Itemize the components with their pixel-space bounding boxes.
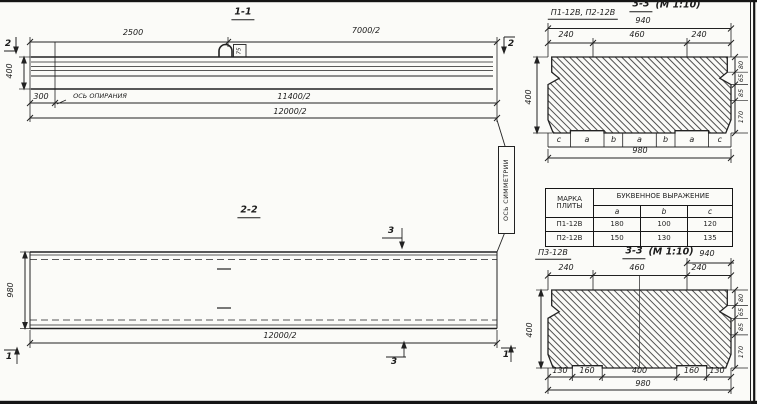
dim-right-85: 85: [738, 88, 745, 96]
dim-130-left: 130: [552, 367, 567, 375]
table-col-c: c: [687, 205, 732, 217]
dim-130-right: 130: [709, 367, 724, 375]
dim-right-170: 170: [738, 111, 745, 123]
section-3-3-bottom-title: 3-3: [622, 245, 645, 259]
dim-160-right: 160: [684, 367, 699, 375]
dim-2500: 2500: [123, 29, 143, 37]
dim-400-left: 400: [526, 322, 534, 337]
dim-240-left: 240: [558, 264, 573, 272]
table-cell: 135: [687, 231, 732, 246]
table-cell: 130: [640, 231, 687, 246]
section-2-2-linework: [4, 228, 516, 364]
table-col-a: a: [593, 205, 640, 217]
cut-marker-2-right: 2: [508, 39, 514, 49]
dim-right-170: 170: [738, 345, 745, 357]
dim-940-top: 940: [635, 17, 650, 25]
table-header-expression: БУКВЕННОЕ ВЫРАЖЕНИЕ: [593, 189, 732, 205]
dim-980-bottom-section: 980: [635, 380, 650, 388]
plate-label-p3: П3-12В: [535, 249, 571, 260]
dim-240-right: 240: [691, 264, 706, 272]
plate-cross-section-hatched: [548, 290, 731, 368]
dim-right-65: 65: [738, 74, 745, 82]
table-row-mark: П2-12В: [546, 231, 593, 246]
drawing-sheet: 1-1 2500 7000/2 2 2 400 75 300 ОСЬ ОПИРА…: [0, 0, 757, 404]
dim-right-80: 80: [738, 294, 745, 302]
dim-height-400: 400: [6, 63, 14, 78]
table-cell: 150: [593, 231, 640, 246]
letter-a-2: a: [637, 136, 642, 144]
dim-7000-2: 7000/2: [352, 27, 380, 35]
plate-parameters-table: МАРКА ПЛИТЫ БУКВЕННОЕ ВЫРАЖЕНИЕ a b c П1…: [545, 188, 733, 247]
dim-160-left: 160: [579, 367, 594, 375]
table-col-b: b: [640, 205, 687, 217]
hook-label: 75: [237, 47, 243, 54]
dim-width-980: 980: [7, 282, 15, 297]
table-cell: 180: [593, 217, 640, 231]
dim-right-65: 65: [738, 308, 745, 316]
section-3-3-bottom-scale: (М 1:10): [648, 247, 693, 258]
dim-12000-2-bottom: 12000/2: [263, 332, 296, 340]
dim-300: 300: [33, 93, 48, 101]
section-2-2-title: 2-2: [237, 204, 260, 218]
dim-940-bottom: 940: [699, 250, 714, 258]
section-3-3-top-title: 3-3: [629, 0, 652, 12]
plate-cross-section-hatched: [548, 57, 731, 133]
table-cell: 100: [640, 217, 687, 231]
dim-460: 460: [629, 31, 644, 39]
dim-right-80: 80: [738, 60, 745, 68]
letter-c-2: c: [718, 136, 722, 144]
dim-11400-2: 11400/2: [277, 93, 310, 101]
dim-400-bottom: 400: [632, 367, 647, 375]
table-cell: 120: [687, 217, 732, 231]
dim-980-top-section: 980: [632, 147, 647, 155]
section-1-1-title: 1-1: [231, 6, 254, 20]
dim-400-left: 400: [525, 89, 533, 104]
letter-a-1: a: [585, 136, 590, 144]
section-3-3-top-scale: (М 1:10): [655, 0, 700, 11]
cut-marker-3-bottom: 3: [391, 357, 397, 367]
letter-a-3: a: [689, 136, 694, 144]
letter-c-1: c: [557, 136, 561, 144]
cut-marker-1-right: 1: [503, 350, 509, 360]
dim-460: 460: [629, 264, 644, 272]
support-axis-label: ОСЬ ОПИРАНИЯ: [73, 93, 127, 100]
cut-marker-3-top: 3: [388, 226, 394, 236]
lifting-hook: [219, 45, 232, 57]
dim-240-left: 240: [558, 31, 573, 39]
symmetry-axis-label: ОСЬ СИММЕТРИИ: [498, 146, 515, 234]
plates-label-p1-p2: П1-12В, П2-12В: [548, 9, 618, 20]
cut-marker-2-left: 2: [5, 39, 11, 49]
table-row-mark: П1-12В: [546, 217, 593, 231]
dim-240-right: 240: [691, 31, 706, 39]
cut-marker-1-left: 1: [6, 352, 12, 362]
letter-b-2: b: [663, 136, 668, 144]
section-1-1-linework: [4, 37, 515, 122]
dim-right-85: 85: [738, 322, 745, 330]
table-header-mark: МАРКА ПЛИТЫ: [546, 189, 593, 217]
dim-12000-2-top: 12000/2: [273, 108, 306, 116]
letter-b-1: b: [611, 136, 616, 144]
